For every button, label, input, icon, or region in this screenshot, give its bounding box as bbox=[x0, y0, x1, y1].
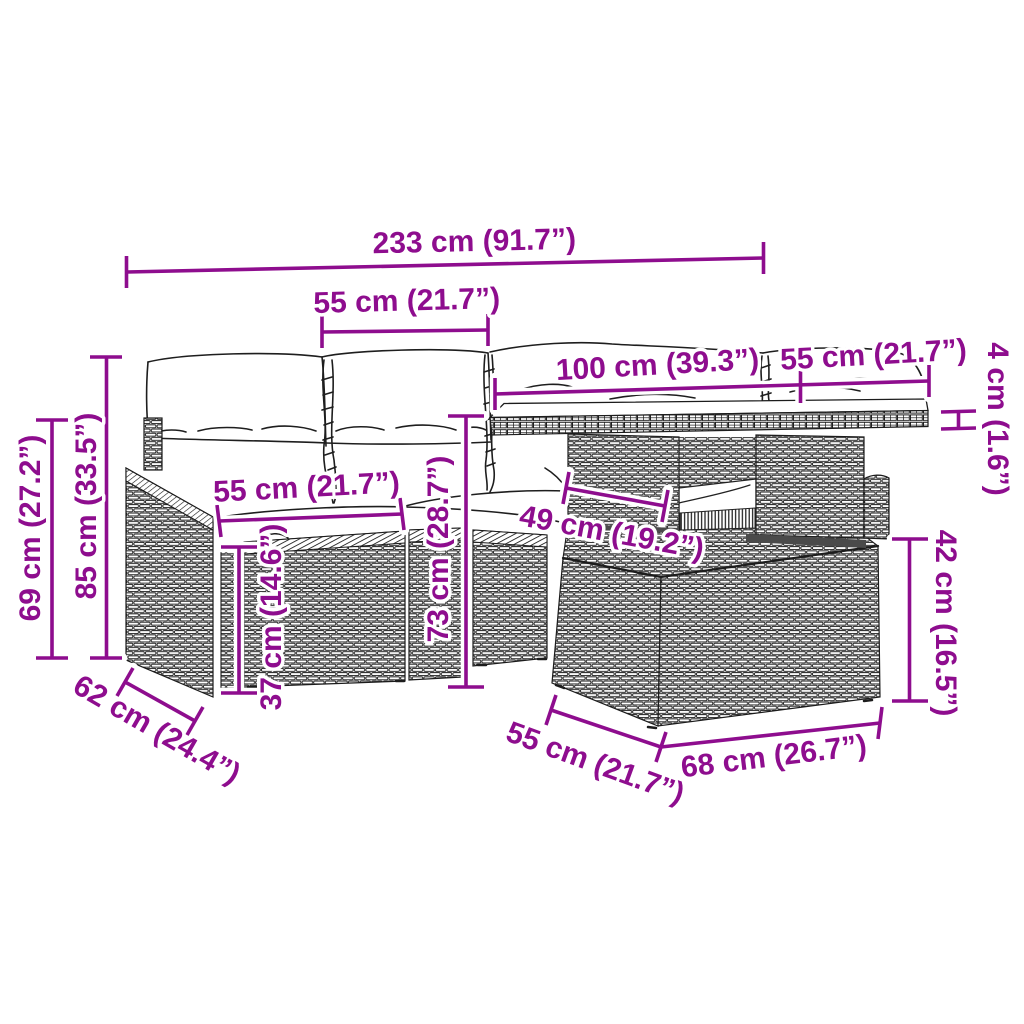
svg-text:55 cm (21.7”): 55 cm (21.7”) bbox=[313, 282, 501, 320]
svg-text:37 cm (14.6”): 37 cm (14.6”) bbox=[255, 524, 288, 711]
svg-text:85 cm (33.5”): 85 cm (33.5”) bbox=[70, 413, 103, 600]
svg-text:4 cm (1.6”): 4 cm (1.6”) bbox=[981, 342, 1014, 495]
svg-text:42 cm (16.5”): 42 cm (16.5”) bbox=[929, 530, 962, 717]
svg-text:69 cm (27.2”): 69 cm (27.2”) bbox=[14, 435, 47, 622]
svg-text:233 cm (91.7”): 233 cm (91.7”) bbox=[372, 223, 576, 261]
svg-text:55 cm (21.7”): 55 cm (21.7”) bbox=[212, 466, 400, 509]
svg-text:55 cm (21.7”): 55 cm (21.7”) bbox=[779, 333, 967, 376]
svg-text:100 cm (39.3”): 100 cm (39.3”) bbox=[555, 343, 760, 387]
svg-text:73 cm (28.7”): 73 cm (28.7”) bbox=[422, 456, 455, 643]
svg-text:62 cm (24.4”): 62 cm (24.4”) bbox=[68, 669, 246, 791]
